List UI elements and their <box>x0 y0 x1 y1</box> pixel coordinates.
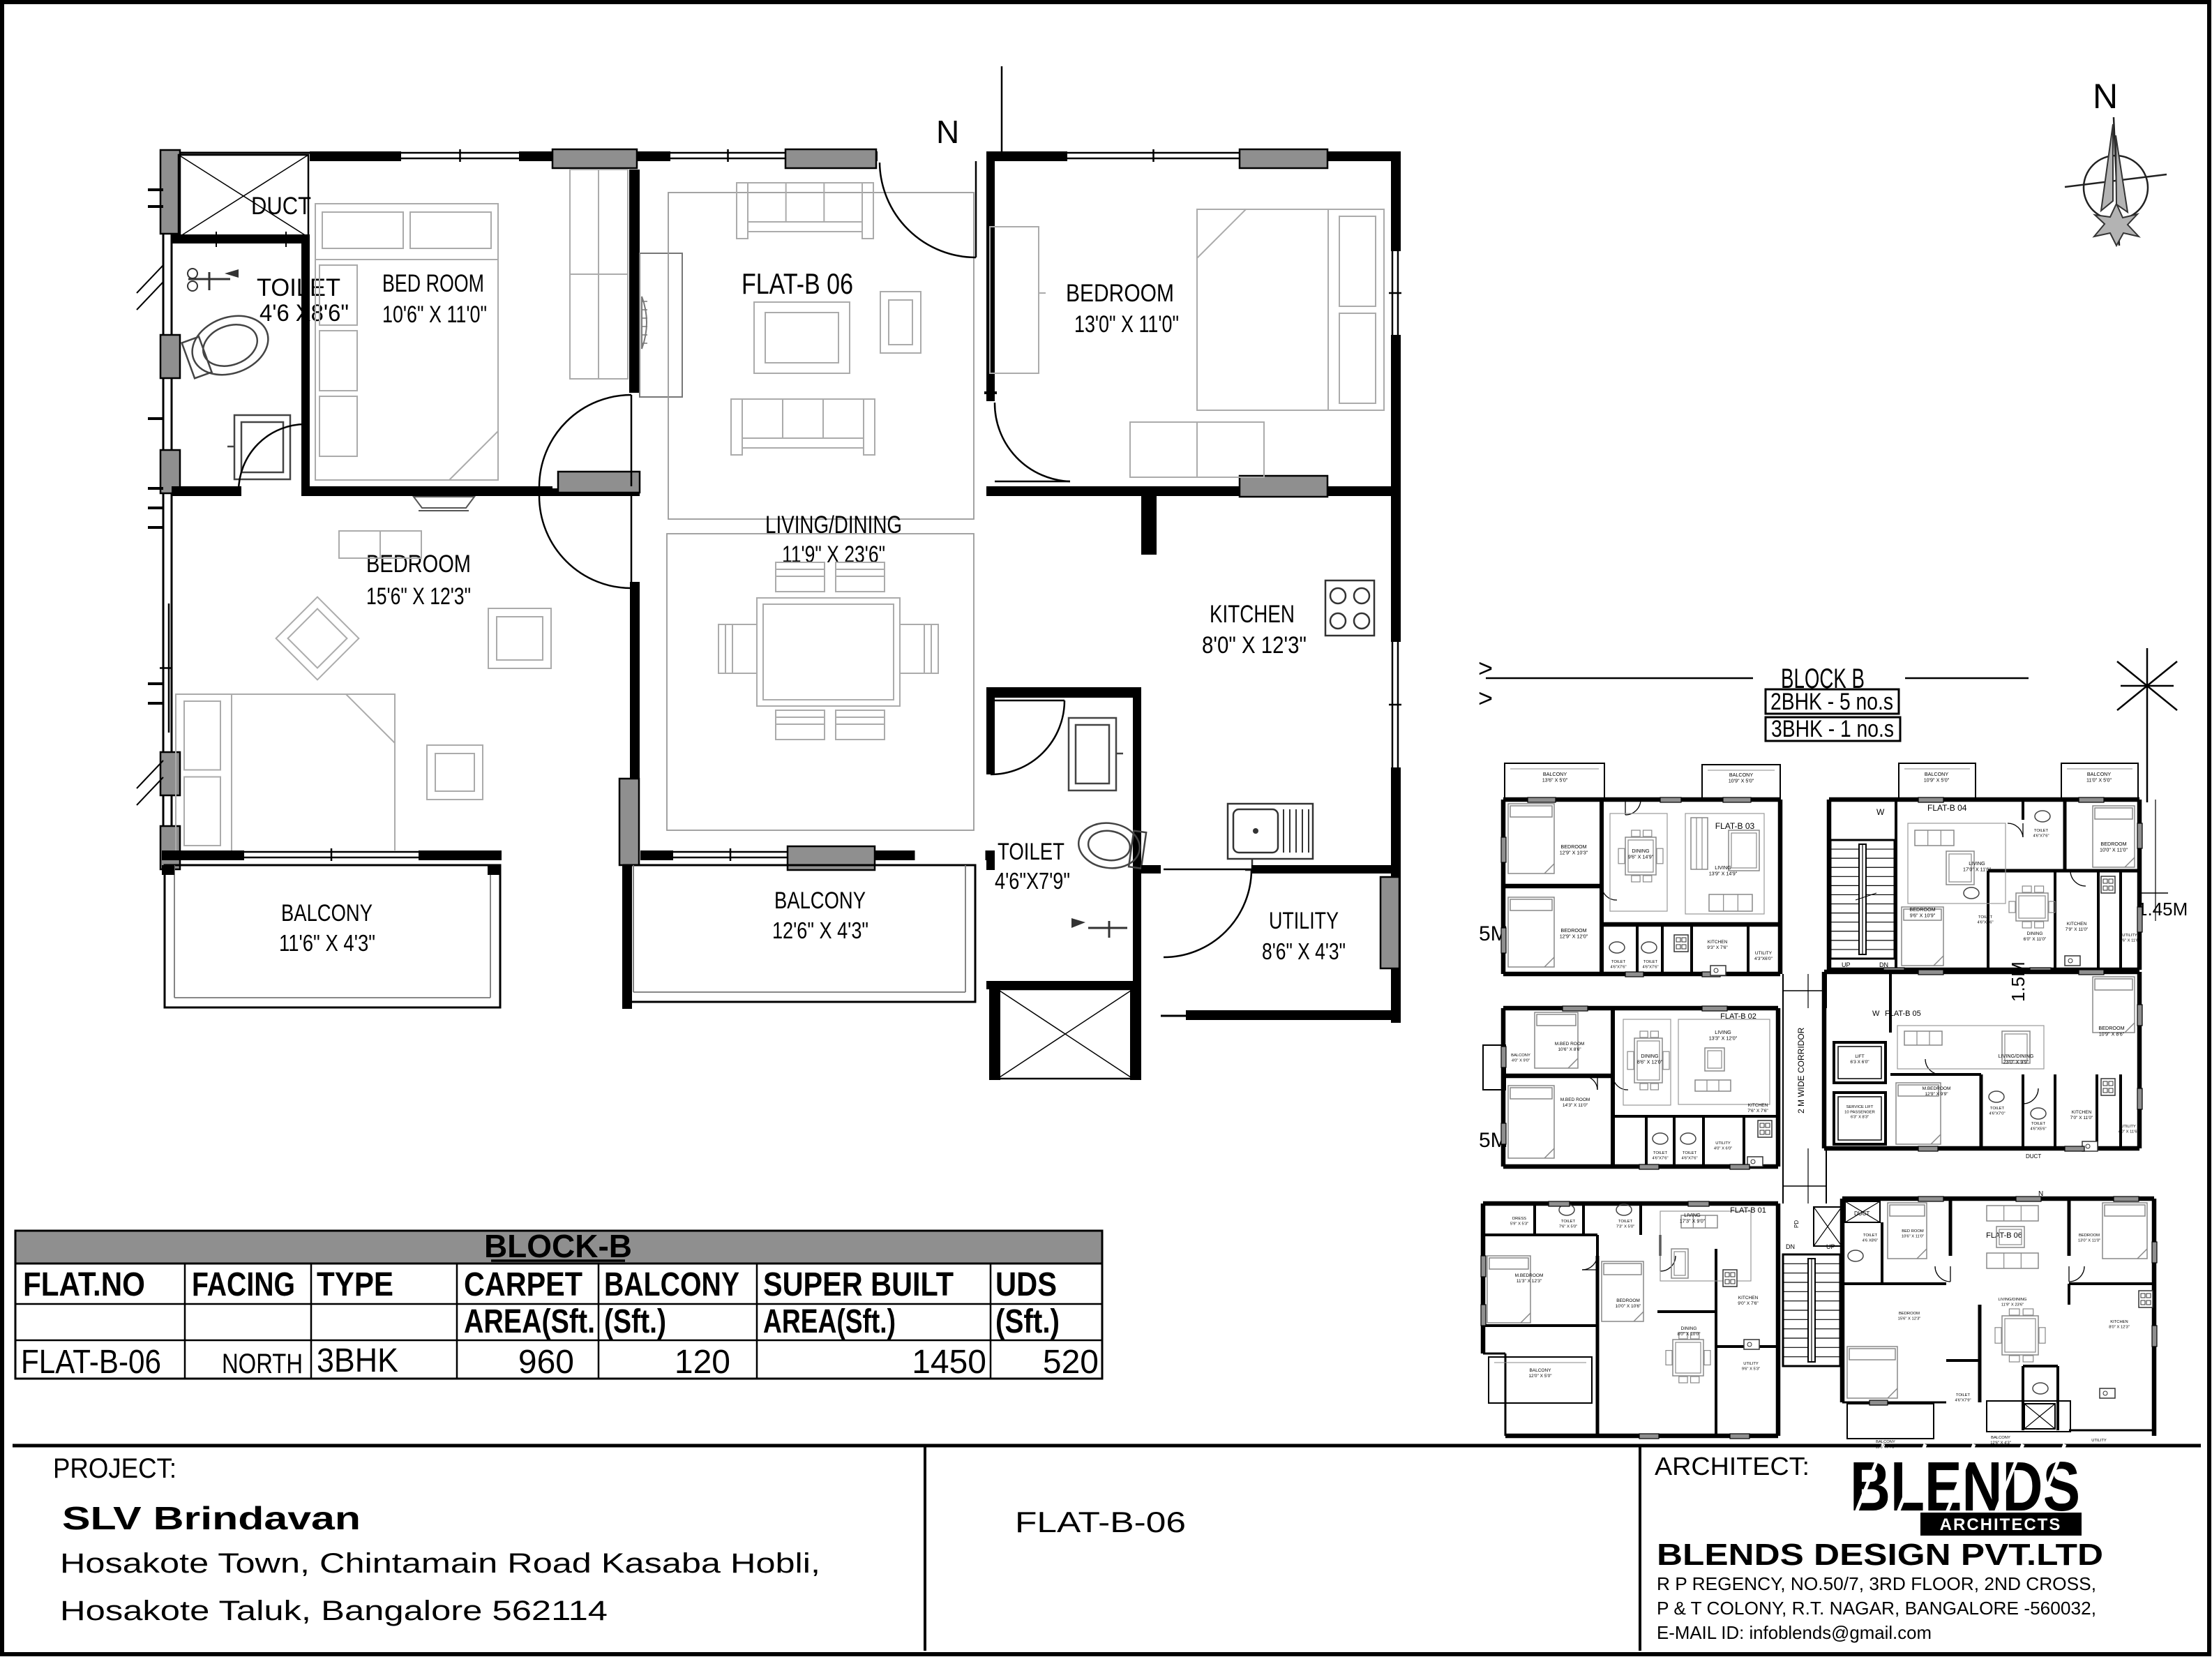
svg-text:BALCONY: BALCONY <box>1925 771 1949 777</box>
svg-text:LIVING/DINING: LIVING/DINING <box>1999 1053 2034 1059</box>
svg-text:9'0" X 7'6": 9'0" X 7'6" <box>1738 1301 1759 1306</box>
svg-text:ARCHITECT:: ARCHITECT: <box>1655 1452 1810 1480</box>
svg-text:4'6"X7'6": 4'6"X7'6" <box>2033 834 2049 838</box>
svg-text:(Sft.): (Sft.) <box>604 1303 666 1340</box>
svg-text:LIFT: LIFT <box>1855 1054 1864 1059</box>
svg-text:4'0" X 9'0": 4'0" X 9'0" <box>1512 1058 1530 1063</box>
svg-text:BALCONY: BALCONY <box>604 1266 739 1303</box>
svg-text:7'3" X 5'0": 7'3" X 5'0" <box>1616 1224 1634 1229</box>
svg-text:SUPER BUILT: SUPER BUILT <box>763 1266 954 1303</box>
svg-text:UTILITY: UTILITY <box>2122 934 2137 938</box>
svg-text:M.BED ROOM: M.BED ROOM <box>1555 1042 1585 1047</box>
svg-text:7'9" X 11'0": 7'9" X 11'0" <box>2066 927 2089 932</box>
svg-text:BEDROOM: BEDROOM <box>366 550 471 578</box>
svg-text:23'0" X 9'9": 23'0" X 9'9" <box>2003 1059 2029 1065</box>
svg-text:TOILET: TOILET <box>998 839 1064 865</box>
svg-text:FLAT-B-06: FLAT-B-06 <box>1015 1506 1186 1538</box>
svg-text:P & T COLONY, R.T. NAGAR, BANG: P & T COLONY, R.T. NAGAR, BANGALORE -560… <box>1657 1598 2096 1619</box>
svg-text:9'6" X 14'9": 9'6" X 14'9" <box>1628 854 1654 860</box>
svg-text:11'6" X 4'3": 11'6" X 4'3" <box>279 930 375 956</box>
svg-text:KITCHEN: KITCHEN <box>2110 1320 2128 1324</box>
svg-text:KITCHEN: KITCHEN <box>1210 601 1295 628</box>
svg-text:BALCONY: BALCONY <box>2087 771 2112 777</box>
svg-text:LIVING/DINING: LIVING/DINING <box>765 511 902 539</box>
svg-text:BALCONY: BALCONY <box>774 887 866 914</box>
svg-text:TOILET: TOILET <box>2031 1122 2046 1126</box>
svg-text:3BHK: 3BHK <box>317 1342 398 1379</box>
svg-text:FLAT-B 06: FLAT-B 06 <box>1986 1231 2022 1240</box>
svg-text:R P REGENCY, NO.50/7, 3RD FLOO: R P REGENCY, NO.50/7, 3RD FLOOR, 2ND CRO… <box>1657 1573 2096 1594</box>
svg-text:UTILITY: UTILITY <box>1755 951 1773 956</box>
svg-text:KITCHEN: KITCHEN <box>1708 940 1728 945</box>
svg-text:Hosakote Taluk, Bangalore 5621: Hosakote Taluk, Bangalore 562114 <box>60 1596 608 1626</box>
svg-text:BALCONY: BALCONY <box>1543 771 1567 777</box>
svg-text:12'6" X 4'3": 12'6" X 4'3" <box>1990 1441 2011 1445</box>
svg-text:TOILET: TOILET <box>1611 960 1626 964</box>
svg-text:CARPET: CARPET <box>464 1266 582 1303</box>
svg-text:BALCONY: BALCONY <box>281 900 373 927</box>
svg-text:DRESS: DRESS <box>1512 1217 1526 1221</box>
svg-text:TOILET: TOILET <box>1683 1151 1697 1155</box>
svg-text:LIVING: LIVING <box>1684 1212 1701 1218</box>
svg-text:BALCONY: BALCONY <box>1529 1368 1551 1373</box>
svg-text:10'6" X 8'6": 10'6" X 8'6" <box>1558 1047 1581 1052</box>
svg-text:NORTH: NORTH <box>222 1349 303 1379</box>
svg-text:SLV Brindavan: SLV Brindavan <box>62 1500 361 1536</box>
svg-text:11'3" X 12'3": 11'3" X 12'3" <box>1517 1279 1542 1284</box>
svg-text:4'0" X 11'6": 4'0" X 11'6" <box>2118 1130 2138 1134</box>
svg-text:6'3" X 8'3": 6'3" X 8'3" <box>1851 1116 1869 1120</box>
svg-text:BEDROOM: BEDROOM <box>2079 1234 2100 1238</box>
svg-text:4'6" X 11'6": 4'6" X 11'6" <box>2119 938 2139 943</box>
svg-text:BEDROOM: BEDROOM <box>2098 1025 2124 1031</box>
svg-text:14'3" X 11'0": 14'3" X 11'0" <box>1563 1103 1588 1108</box>
svg-text:4'6"X7'6": 4'6"X7'6" <box>1681 1156 1697 1160</box>
svg-text:TOILET: TOILET <box>2034 829 2049 833</box>
svg-text:BED ROOM: BED ROOM <box>382 270 484 297</box>
svg-text:4'6"X7'6": 4'6"X7'6" <box>1977 920 1993 924</box>
svg-text:TOILET: TOILET <box>1863 1234 1878 1238</box>
svg-text:6'0" X 11'0": 6'0" X 11'0" <box>2024 937 2047 942</box>
svg-text:DINING: DINING <box>1641 1053 1659 1059</box>
svg-text:>: > <box>1478 684 1493 712</box>
svg-text:FLAT-B 05: FLAT-B 05 <box>1885 1010 1921 1018</box>
svg-text:FLAT.NO: FLAT.NO <box>23 1266 145 1303</box>
svg-text:4'6"X7'0": 4'6"X7'0" <box>1989 1111 2005 1116</box>
svg-text:11'0" X 5'0": 11'0" X 5'0" <box>2086 777 2112 783</box>
svg-text:10 PASSENGER: 10 PASSENGER <box>1844 1110 1875 1114</box>
svg-text:TOILET: TOILET <box>1618 1220 1633 1224</box>
svg-text:TYPE: TYPE <box>317 1266 393 1303</box>
svg-text:FLAT-B-06: FLAT-B-06 <box>21 1344 161 1381</box>
svg-text:9'3" X 7'6": 9'3" X 7'6" <box>1707 945 1728 950</box>
svg-text:TOILET: TOILET <box>1990 1107 2005 1111</box>
svg-text:KITCHEN: KITCHEN <box>1738 1296 1759 1300</box>
svg-text:4'0" X 6'0": 4'0" X 6'0" <box>1714 1146 1732 1150</box>
svg-text:10'0" X 10'6": 10'0" X 10'6" <box>1616 1304 1641 1309</box>
svg-text:13'9" X 14'9": 13'9" X 14'9" <box>1709 871 1738 877</box>
svg-text:BEDROOM: BEDROOM <box>2100 841 2126 847</box>
svg-text:9'6" X 10'9": 9'6" X 10'9" <box>1910 913 1936 919</box>
svg-text:BALCONY: BALCONY <box>1876 1440 1895 1444</box>
svg-text:FLAT-B 04: FLAT-B 04 <box>1927 803 1967 813</box>
svg-text:UP: UP <box>1842 961 1851 968</box>
svg-text:UTILITY: UTILITY <box>1743 1362 1759 1366</box>
svg-text:8'0" X 10'0": 8'0" X 10'0" <box>1677 1332 1701 1337</box>
svg-text:BEDROOM: BEDROOM <box>1560 844 1586 850</box>
svg-text:9'6" X 5'3": 9'6" X 5'3" <box>1742 1367 1760 1371</box>
svg-text:BALCONY: BALCONY <box>1991 1436 2010 1440</box>
svg-text:BALCONY: BALCONY <box>1729 772 1754 778</box>
svg-text:15'6" X 12'3": 15'6" X 12'3" <box>1898 1317 1921 1321</box>
svg-text:DUCT: DUCT <box>1854 1210 1869 1217</box>
svg-text:4'6 X8'6": 4'6 X8'6" <box>1863 1238 1879 1243</box>
svg-text:DUCT: DUCT <box>251 193 311 220</box>
svg-text:BEDROOM: BEDROOM <box>1899 1312 1920 1316</box>
svg-text:M.BEDROOM: M.BEDROOM <box>1515 1273 1544 1278</box>
svg-text:13'0" X 11'0": 13'0" X 11'0" <box>2078 1238 2100 1243</box>
svg-text:BEDROOM: BEDROOM <box>1066 280 1174 307</box>
svg-text:DUCT: DUCT <box>2026 1153 2041 1160</box>
svg-text:15'6" X 12'3": 15'6" X 12'3" <box>366 583 471 610</box>
svg-text:12'9" X 10'3": 12'9" X 10'3" <box>1560 850 1588 856</box>
svg-text:FLAT-B 01: FLAT-B 01 <box>1730 1206 1766 1215</box>
svg-text:TOILET: TOILET <box>1561 1220 1576 1224</box>
svg-text:8'0" X 12'3": 8'0" X 12'3" <box>1202 632 1307 659</box>
svg-text:10'0" X 11'0": 10'0" X 11'0" <box>2100 847 2128 853</box>
svg-text:M.BEDROOM: M.BEDROOM <box>1923 1086 1951 1091</box>
svg-text:KITCHEN: KITCHEN <box>2067 922 2087 927</box>
svg-text:BLENDS DESIGN PVT.LTD: BLENDS DESIGN PVT.LTD <box>1657 1538 2103 1572</box>
svg-text:DN: DN <box>1786 1243 1795 1250</box>
svg-text:10'9" X 8'6": 10'9" X 8'6" <box>2099 1031 2125 1037</box>
svg-text:TOILET: TOILET <box>257 274 340 301</box>
svg-text:1450: 1450 <box>912 1344 986 1381</box>
svg-text:UTILITY: UTILITY <box>1269 908 1339 934</box>
svg-text:KITCHEN: KITCHEN <box>1748 1103 1768 1108</box>
svg-text:17'0" X 11'6": 17'0" X 11'6" <box>1963 867 1992 873</box>
svg-text:10'9" X 5'0": 10'9" X 5'0" <box>1729 778 1754 784</box>
svg-text:11'9" X 23'6": 11'9" X 23'6" <box>782 541 885 568</box>
svg-text:4'6"X7'9": 4'6"X7'9" <box>1955 1398 1971 1402</box>
svg-text:TOILET: TOILET <box>1956 1393 1971 1397</box>
svg-text:DINING: DINING <box>1681 1326 1697 1331</box>
svg-text:UDS: UDS <box>995 1266 1057 1303</box>
svg-text:12'9" X 12'0": 12'9" X 12'0" <box>1560 934 1588 940</box>
svg-text:1.45M: 1.45M <box>2137 899 2188 920</box>
svg-text:FLAT-B 02: FLAT-B 02 <box>1720 1012 1756 1021</box>
svg-text:10'9" X 5'0": 10'9" X 5'0" <box>1924 777 1950 783</box>
svg-text:TOILET: TOILET <box>1978 915 1993 920</box>
svg-text:7'0" X 11'0": 7'0" X 11'0" <box>2070 1116 2093 1120</box>
svg-text:BEDROOM: BEDROOM <box>1560 927 1586 934</box>
svg-text:AREA(Sft.: AREA(Sft. <box>464 1303 595 1340</box>
svg-text:LIVING: LIVING <box>1715 1029 1731 1035</box>
svg-text:8'6" X 12'0": 8'6" X 12'0" <box>1637 1059 1663 1065</box>
svg-text:>: > <box>1478 654 1493 682</box>
svg-text:M.BED ROOM: M.BED ROOM <box>1560 1097 1590 1102</box>
svg-text:120: 120 <box>675 1344 730 1381</box>
svg-text:BLOCK-B: BLOCK-B <box>484 1228 632 1264</box>
svg-text:FLAT-B 06: FLAT-B 06 <box>742 267 853 300</box>
svg-text:Hosakote Town, Chintamain Road: Hosakote Town, Chintamain Road Kasaba Ho… <box>60 1548 820 1579</box>
svg-text:DINING: DINING <box>1632 848 1650 854</box>
svg-text:LIVING: LIVING <box>1969 860 1985 867</box>
svg-text:12'0" X 5'0": 12'0" X 5'0" <box>1528 1374 1552 1379</box>
svg-text:8'0" X 12'3": 8'0" X 12'3" <box>2109 1325 2130 1329</box>
svg-text:11'9" X 23'6": 11'9" X 23'6" <box>2001 1303 2024 1307</box>
svg-text:17'3" X 9'0": 17'3" X 9'0" <box>1680 1218 1706 1224</box>
svg-text:(Sft.): (Sft.) <box>995 1303 1060 1340</box>
svg-text:11'6" X 4'3": 11'6" X 4'3" <box>1875 1445 1895 1449</box>
svg-text:13'0" X 11'0": 13'0" X 11'0" <box>1074 311 1179 338</box>
svg-text:E-MAIL ID: infoblends@gmail.co: E-MAIL ID: infoblends@gmail.com <box>1657 1622 1932 1643</box>
svg-text:13'3" X 12'0": 13'3" X 12'0" <box>1709 1035 1738 1042</box>
svg-text:N: N <box>2093 77 2118 116</box>
svg-text:12'6" X 4'3": 12'6" X 4'3" <box>772 917 868 943</box>
svg-text:4'6"X5'6": 4'6"X5'6" <box>2030 1127 2046 1131</box>
svg-text:UTILITY: UTILITY <box>2091 1439 2107 1443</box>
svg-text:BEDROOM: BEDROOM <box>1909 906 1935 913</box>
svg-text:BEDROOM: BEDROOM <box>1616 1298 1640 1303</box>
svg-text:4'6"X7'6": 4'6"X7'6" <box>1610 965 1626 969</box>
svg-text:LIVING/DINING: LIVING/DINING <box>1999 1298 2027 1302</box>
svg-text:10'6" X 11'0": 10'6" X 11'0" <box>1902 1234 1924 1238</box>
svg-text:TOILET: TOILET <box>1643 960 1658 964</box>
svg-text:4'6"X7'6": 4'6"X7'6" <box>1652 1156 1668 1160</box>
svg-text:520: 520 <box>1043 1344 1099 1381</box>
svg-text:W: W <box>1876 807 1885 817</box>
svg-text:12'9" X 9'9": 12'9" X 9'9" <box>1925 1092 1948 1097</box>
svg-text:FLAT-B 03: FLAT-B 03 <box>1715 821 1755 831</box>
svg-text:PROJECT:: PROJECT: <box>53 1453 176 1484</box>
svg-text:FACING: FACING <box>192 1266 295 1303</box>
svg-text:ARCHITECTS: ARCHITECTS <box>1940 1515 2062 1534</box>
svg-text:7'6" X 5'0": 7'6" X 5'0" <box>1559 1224 1577 1229</box>
svg-text:DINING: DINING <box>2027 931 2043 936</box>
svg-text:KITCHEN: KITCHEN <box>2072 1110 2092 1115</box>
svg-text:10'6" X 11'0": 10'6" X 11'0" <box>382 301 487 328</box>
svg-text:LIVING: LIVING <box>1715 864 1731 871</box>
svg-text:W: W <box>1872 1010 1880 1018</box>
svg-text:BED ROOM: BED ROOM <box>1902 1229 1924 1234</box>
svg-text:3BHK - 1 no.s: 3BHK - 1 no.s <box>1771 716 1894 742</box>
svg-text:2 M WIDE CORRIDOR: 2 M WIDE CORRIDOR <box>1796 1027 1806 1114</box>
svg-text:960: 960 <box>518 1344 574 1381</box>
svg-text:SERVICE LIFT: SERVICE LIFT <box>1846 1105 1874 1109</box>
svg-text:8'6" X 4'3": 8'6" X 4'3" <box>2090 1444 2108 1448</box>
svg-text:TOILET: TOILET <box>1653 1151 1668 1155</box>
svg-text:4'6"X7'6": 4'6"X7'6" <box>1642 965 1658 969</box>
svg-text:PD: PD <box>1793 1220 1800 1228</box>
svg-text:7'6" X 7'6": 7'6" X 7'6" <box>1747 1109 1768 1114</box>
svg-text:AREA(Sft.): AREA(Sft.) <box>763 1303 896 1340</box>
svg-text:4'3"X6'0": 4'3"X6'0" <box>1754 957 1773 961</box>
svg-text:5'9" X 5'3": 5'9" X 5'3" <box>1510 1222 1528 1226</box>
svg-text:UTILITY: UTILITY <box>1715 1141 1731 1146</box>
svg-text:UTILITY: UTILITY <box>2121 1125 2136 1129</box>
svg-text:8'6" X 4'3": 8'6" X 4'3" <box>1262 938 1346 964</box>
svg-text:2BHK - 5 no.s: 2BHK - 5 no.s <box>1770 689 1893 715</box>
svg-text:BALCONY: BALCONY <box>1511 1054 1530 1058</box>
svg-text:6'3 X 6'0": 6'3 X 6'0" <box>1850 1060 1869 1065</box>
svg-text:4'6"X7'9": 4'6"X7'9" <box>995 868 1070 894</box>
svg-text:13'6" X 5'0": 13'6" X 5'0" <box>1542 777 1568 783</box>
svg-text:N: N <box>936 114 959 150</box>
